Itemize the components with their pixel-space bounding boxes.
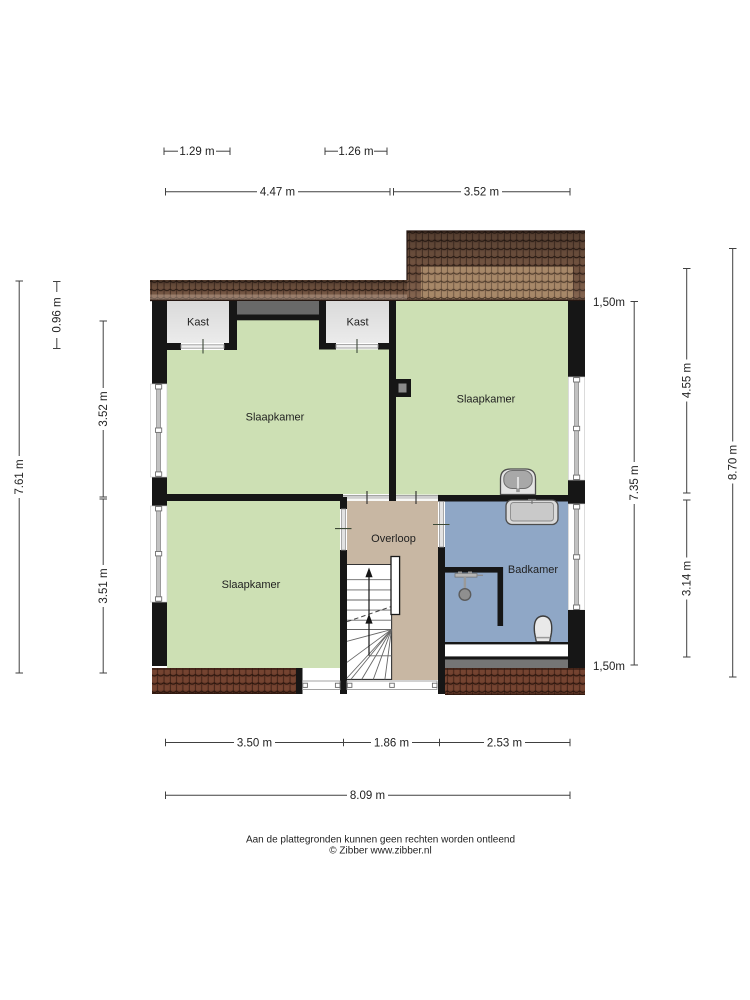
svg-text:7.61 m: 7.61 m (14, 459, 26, 494)
svg-text:8.70 m: 8.70 m (728, 445, 740, 480)
svg-text:Badkamer: Badkamer (508, 564, 558, 576)
svg-text:0.96 m: 0.96 m (52, 297, 64, 332)
svg-text:1,50m: 1,50m (593, 661, 625, 673)
svg-text:4.55 m: 4.55 m (682, 363, 694, 398)
svg-text:Slaapkamer: Slaapkamer (457, 394, 516, 406)
svg-text:7.35 m: 7.35 m (629, 465, 641, 500)
svg-text:1.26 m: 1.26 m (338, 146, 373, 158)
svg-text:3.51 m: 3.51 m (98, 568, 110, 603)
svg-text:1.86 m: 1.86 m (374, 737, 409, 749)
svg-text:1.29 m: 1.29 m (179, 146, 214, 158)
svg-text:Kast: Kast (187, 317, 209, 329)
svg-text:3.14 m: 3.14 m (682, 561, 694, 596)
svg-text:Slaapkamer: Slaapkamer (222, 579, 281, 591)
svg-text:3.52 m: 3.52 m (98, 391, 110, 426)
svg-text:3.52 m: 3.52 m (464, 187, 499, 199)
svg-text:Overloop: Overloop (371, 533, 416, 545)
svg-text:Aan de plattegronden kunnen ge: Aan de plattegronden kunnen geen rechten… (246, 835, 515, 846)
svg-text:Kast: Kast (346, 317, 368, 329)
svg-text:3.50 m: 3.50 m (237, 737, 272, 749)
svg-text:Slaapkamer: Slaapkamer (246, 412, 305, 424)
svg-text:2.53 m: 2.53 m (487, 737, 522, 749)
svg-text:1,50m: 1,50m (593, 297, 625, 309)
svg-text:8.09 m: 8.09 m (350, 790, 385, 802)
svg-text:© Zibber www.zibber.nl: © Zibber www.zibber.nl (329, 846, 431, 857)
svg-text:4.47 m: 4.47 m (260, 187, 295, 199)
